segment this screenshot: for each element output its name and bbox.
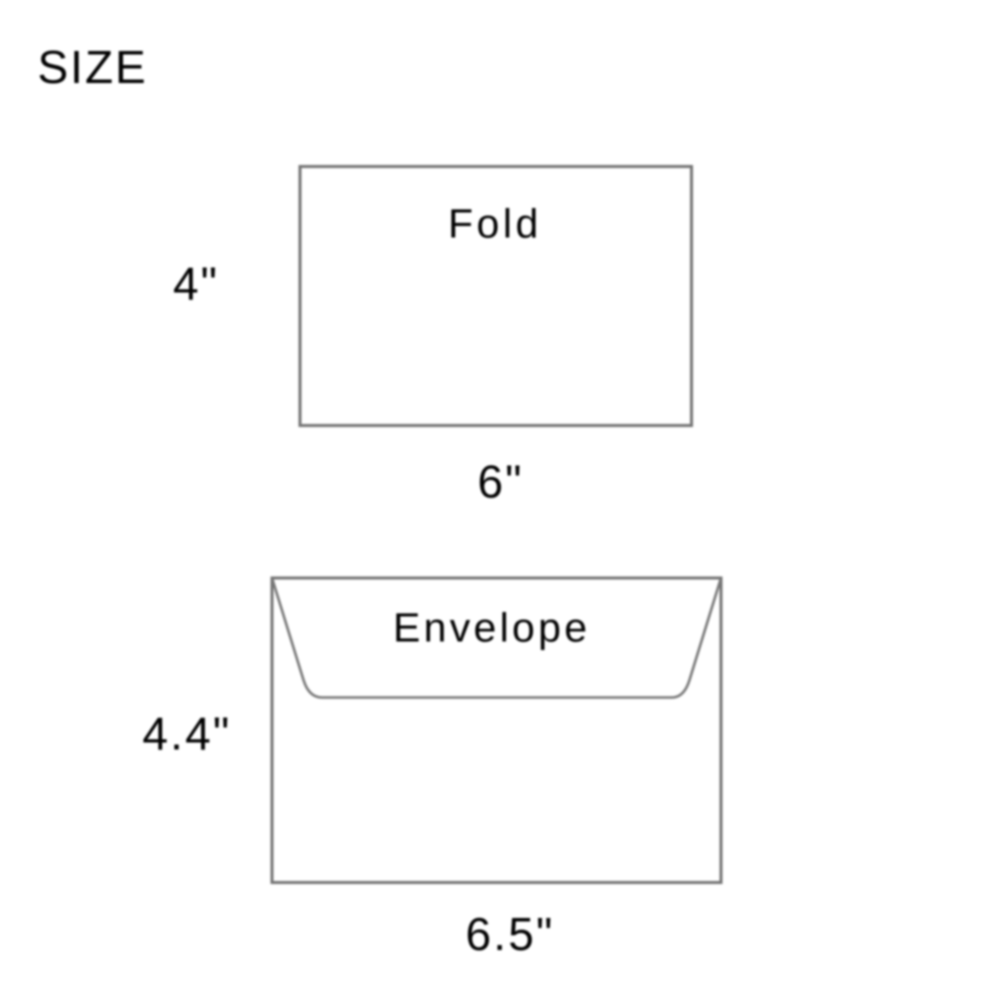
svg-text:SIZE: SIZE	[38, 41, 148, 93]
svg-text:6": 6"	[478, 456, 524, 508]
svg-text:Fold: Fold	[448, 201, 542, 247]
svg-text:Envelope: Envelope	[393, 605, 590, 651]
svg-text:4": 4"	[173, 258, 219, 310]
svg-text:6.5": 6.5"	[466, 908, 555, 960]
svg-text:4.4": 4.4"	[142, 708, 231, 760]
